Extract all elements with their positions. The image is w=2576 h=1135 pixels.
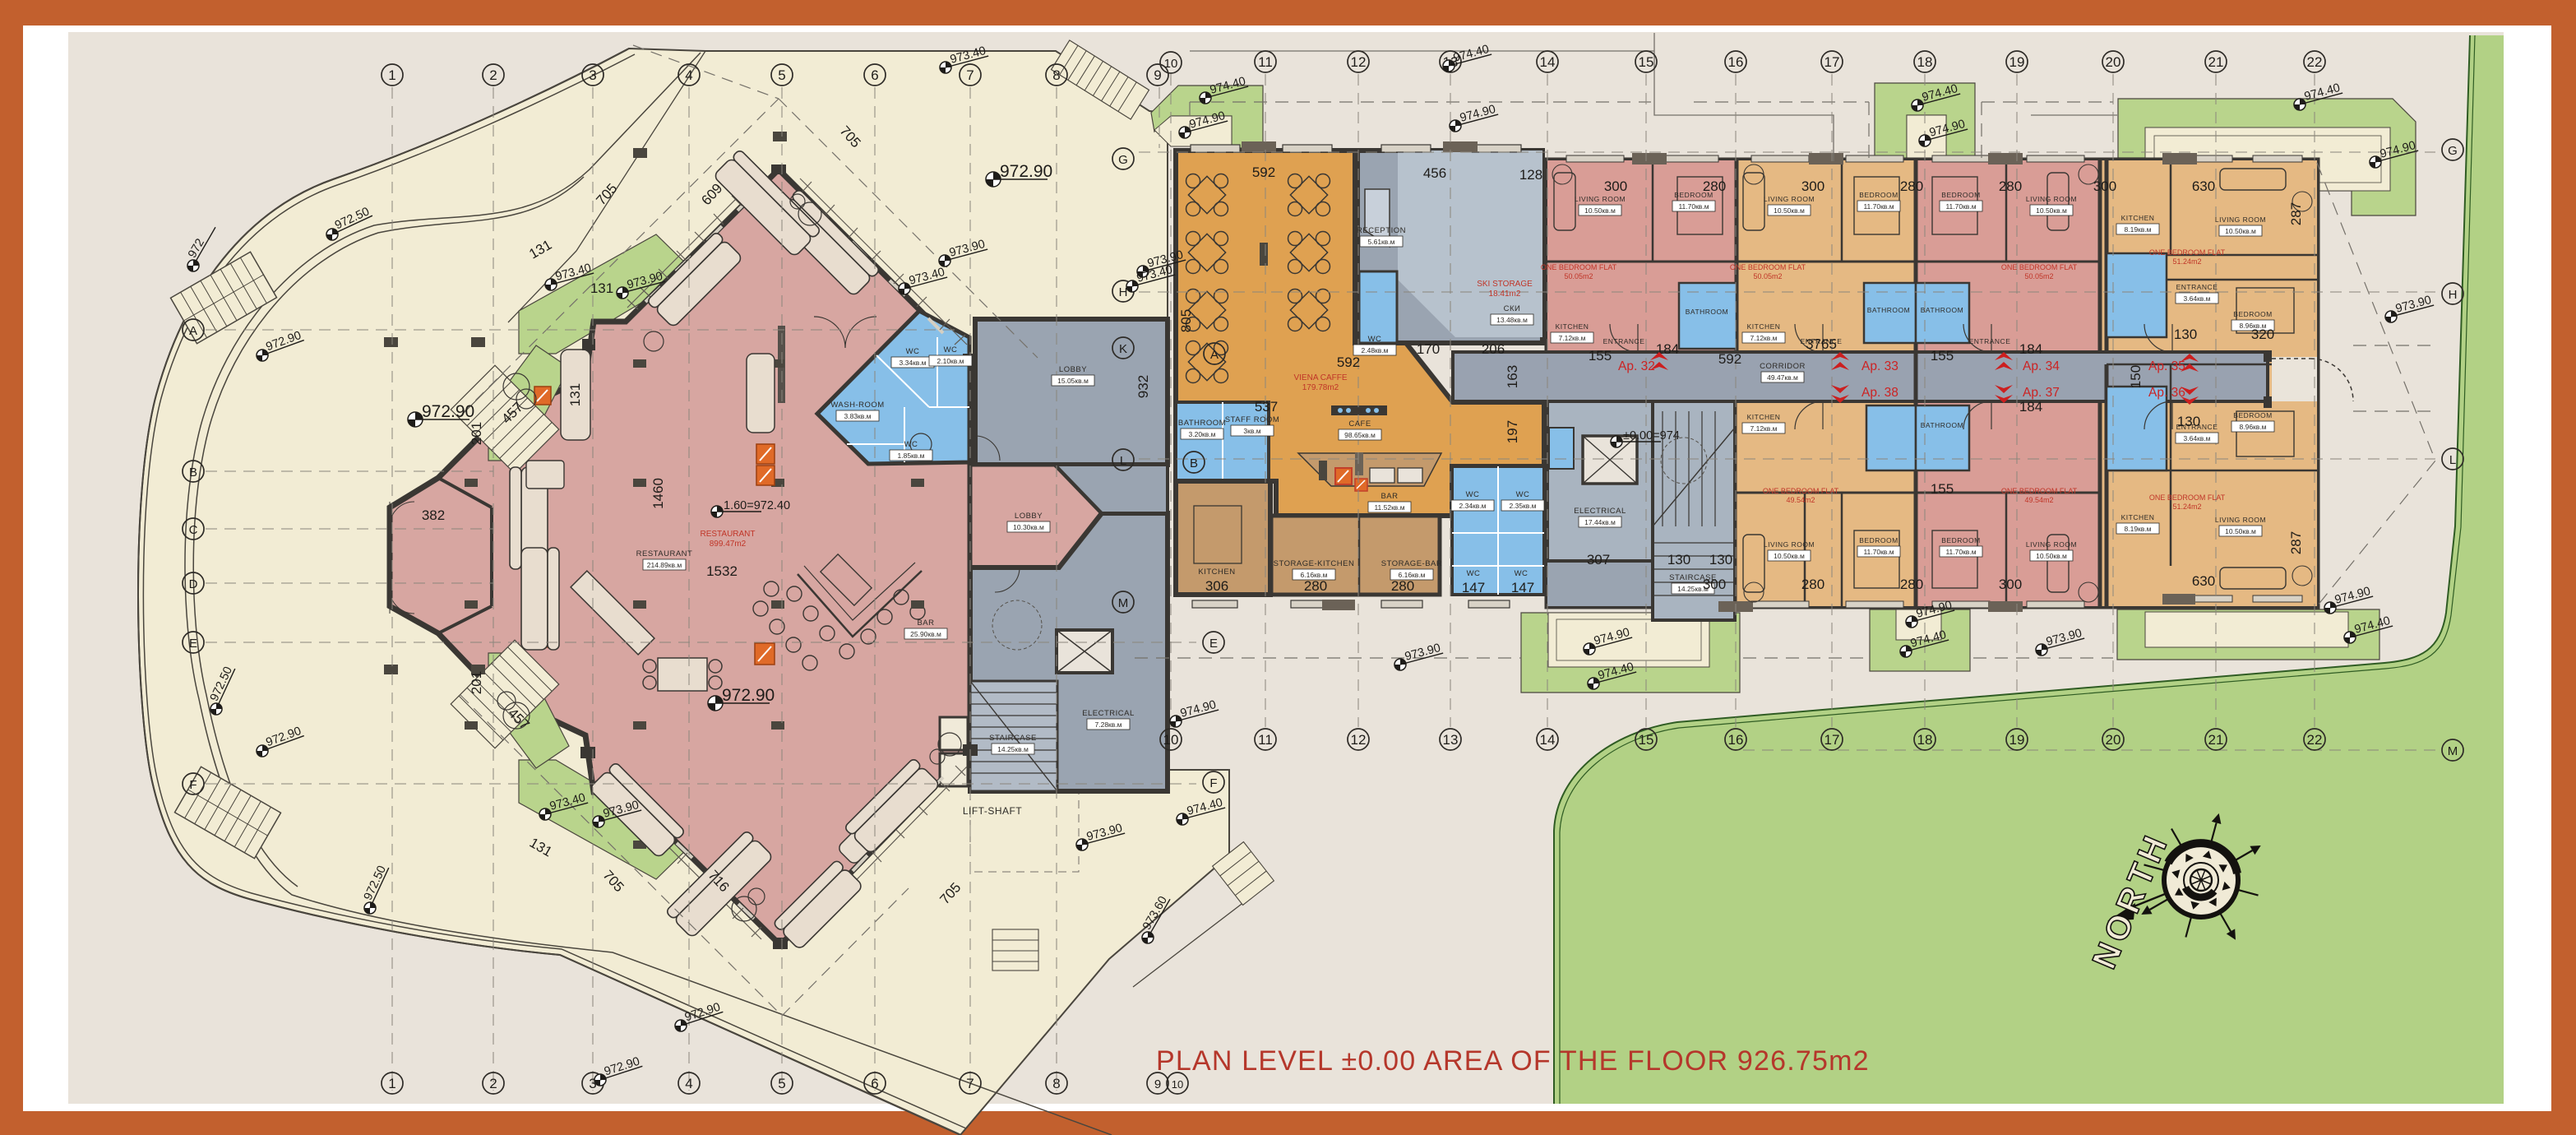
svg-text:1.60=972.40: 1.60=972.40 bbox=[724, 499, 790, 512]
svg-text:ONE BEDROOM FLAT: ONE BEDROOM FLAT bbox=[2001, 263, 2078, 271]
svg-text:7.12кв.м: 7.12кв.м bbox=[1559, 334, 1586, 342]
svg-text:LIVING ROOM: LIVING ROOM bbox=[1575, 195, 1626, 203]
svg-text:LIVING ROOM: LIVING ROOM bbox=[1764, 540, 1815, 549]
svg-text:287: 287 bbox=[2288, 202, 2304, 225]
svg-text:WC: WC bbox=[904, 440, 918, 449]
svg-text:3.20кв.м: 3.20кв.м bbox=[1189, 430, 1216, 438]
svg-text:280: 280 bbox=[1900, 178, 1923, 194]
svg-text:10: 10 bbox=[1163, 732, 1179, 748]
svg-text:280: 280 bbox=[1900, 577, 1923, 592]
svg-text:KITCHEN: KITCHEN bbox=[1747, 322, 1781, 331]
svg-text:6: 6 bbox=[871, 1076, 878, 1091]
svg-text:8.19кв.м: 8.19кв.м bbox=[2125, 525, 2152, 533]
svg-text:E: E bbox=[189, 637, 197, 651]
svg-text:B: B bbox=[1190, 456, 1198, 470]
svg-text:10.50кв.м: 10.50кв.м bbox=[1774, 206, 1805, 215]
svg-text:18.41m2: 18.41m2 bbox=[1489, 290, 1521, 299]
svg-text:RESTAURANT: RESTAURANT bbox=[636, 549, 693, 558]
svg-text:11.70кв.м: 11.70кв.м bbox=[1863, 202, 1894, 211]
svg-text:A: A bbox=[1210, 348, 1219, 362]
svg-text:ELECTRICAL: ELECTRICAL bbox=[1574, 507, 1626, 516]
svg-text:197: 197 bbox=[1505, 420, 1520, 443]
svg-text:ONE BEDROOM FLAT: ONE BEDROOM FLAT bbox=[2001, 487, 2078, 495]
svg-text:592: 592 bbox=[1252, 164, 1275, 180]
svg-text:G: G bbox=[1118, 153, 1128, 167]
svg-text:179.78m2: 179.78m2 bbox=[1302, 383, 1339, 392]
svg-text:10: 10 bbox=[1172, 1078, 1183, 1091]
svg-text:10.50кв.м: 10.50кв.м bbox=[1584, 206, 1616, 215]
svg-text:11.70кв.м: 11.70кв.м bbox=[1863, 548, 1894, 556]
svg-text:CAFE: CAFE bbox=[1348, 419, 1371, 429]
svg-text:BEDROOM: BEDROOM bbox=[1859, 191, 1898, 199]
svg-text:50.05m2: 50.05m2 bbox=[1753, 272, 1782, 280]
svg-text:184: 184 bbox=[2019, 341, 2042, 357]
svg-text:Ap. 34: Ap. 34 bbox=[2023, 359, 2060, 373]
svg-text:382: 382 bbox=[422, 507, 445, 523]
svg-text:19: 19 bbox=[2009, 732, 2025, 748]
svg-text:17.44кв.м: 17.44кв.м bbox=[1584, 518, 1616, 526]
svg-text:RECEPTION: RECEPTION bbox=[1357, 226, 1406, 235]
svg-text:131: 131 bbox=[567, 383, 583, 406]
svg-text:BEDROOM: BEDROOM bbox=[1941, 536, 1980, 544]
svg-text:155: 155 bbox=[1931, 348, 1954, 364]
svg-text:9: 9 bbox=[1154, 67, 1161, 83]
svg-text:ONE BEDROOM FLAT: ONE BEDROOM FLAT bbox=[1763, 487, 1839, 495]
svg-text:BATHROOM: BATHROOM bbox=[1178, 419, 1226, 428]
svg-text:WC: WC bbox=[1467, 569, 1481, 578]
svg-text:300: 300 bbox=[1801, 178, 1824, 194]
svg-text:972.90: 972.90 bbox=[722, 686, 775, 705]
svg-text:ONE BEDROOM FLAT: ONE BEDROOM FLAT bbox=[2149, 248, 2226, 257]
svg-text:СКИ: СКИ bbox=[1504, 304, 1521, 313]
svg-text:21: 21 bbox=[2208, 54, 2224, 70]
svg-text:14: 14 bbox=[1540, 732, 1556, 748]
svg-text:11: 11 bbox=[1258, 732, 1273, 748]
svg-text:8.96кв.м: 8.96кв.м bbox=[2240, 423, 2267, 431]
svg-text:8: 8 bbox=[1052, 1076, 1060, 1091]
svg-text:2.48кв.м: 2.48кв.м bbox=[1362, 346, 1389, 354]
svg-text:280: 280 bbox=[1999, 178, 2022, 194]
svg-text:147: 147 bbox=[1511, 580, 1534, 595]
svg-text:300: 300 bbox=[1604, 178, 1627, 194]
svg-text:KITCHEN: KITCHEN bbox=[2121, 214, 2155, 222]
svg-text:5: 5 bbox=[778, 1076, 785, 1091]
svg-text:1.85кв.м: 1.85кв.м bbox=[898, 452, 925, 460]
svg-text:ENTRANCE: ENTRANCE bbox=[1969, 337, 2011, 345]
svg-text:201: 201 bbox=[469, 671, 484, 694]
svg-text:11.70кв.м: 11.70кв.м bbox=[1945, 548, 1976, 556]
svg-text:630: 630 bbox=[2192, 573, 2215, 589]
svg-text:7: 7 bbox=[966, 67, 974, 83]
svg-text:CORRIDOR: CORRIDOR bbox=[1760, 362, 1806, 371]
svg-text:1: 1 bbox=[388, 1076, 395, 1091]
svg-text:4: 4 bbox=[685, 1076, 692, 1091]
svg-text:22: 22 bbox=[2307, 54, 2323, 70]
svg-text:3.64кв.м: 3.64кв.м bbox=[2184, 434, 2211, 442]
svg-text:130: 130 bbox=[2174, 327, 2197, 342]
svg-text:4: 4 bbox=[685, 67, 692, 83]
svg-text:BEDROOM: BEDROOM bbox=[2233, 310, 2272, 318]
svg-text:287: 287 bbox=[2288, 531, 2304, 554]
svg-text:LOBBY: LOBBY bbox=[1059, 365, 1087, 374]
svg-text:WC: WC bbox=[1466, 490, 1480, 499]
svg-text:49.54m2: 49.54m2 bbox=[2024, 496, 2053, 504]
svg-text:Ap. 37: Ap. 37 bbox=[2023, 386, 2060, 400]
svg-text:49.47кв.м: 49.47кв.м bbox=[1767, 373, 1798, 382]
svg-text:VIENA CAFFE: VIENA CAFFE bbox=[1293, 373, 1347, 382]
svg-text:19: 19 bbox=[2009, 54, 2025, 70]
svg-text:WC: WC bbox=[1516, 490, 1530, 499]
svg-text:300: 300 bbox=[1703, 577, 1726, 592]
svg-text:C: C bbox=[189, 523, 198, 537]
svg-text:K: K bbox=[1119, 342, 1127, 356]
svg-text:456: 456 bbox=[1423, 165, 1446, 181]
svg-text:11.70кв.м: 11.70кв.м bbox=[1945, 202, 1976, 211]
svg-text:592: 592 bbox=[1337, 354, 1360, 370]
svg-text:51.24m2: 51.24m2 bbox=[2172, 503, 2201, 511]
svg-text:KITCHEN: KITCHEN bbox=[1556, 322, 1589, 331]
svg-text:8: 8 bbox=[1052, 67, 1060, 83]
svg-text:2.35кв.м: 2.35кв.м bbox=[1510, 502, 1537, 510]
svg-text:LIVING ROOM: LIVING ROOM bbox=[2215, 516, 2266, 524]
svg-text:16: 16 bbox=[1728, 732, 1744, 748]
svg-text:10.30кв.м: 10.30кв.м bbox=[1013, 523, 1044, 531]
svg-text:11.70кв.м: 11.70кв.м bbox=[1678, 202, 1709, 211]
svg-text:BEDROOM: BEDROOM bbox=[1941, 191, 1980, 199]
svg-text:LIVING ROOM: LIVING ROOM bbox=[2215, 215, 2266, 224]
svg-text:14: 14 bbox=[1540, 54, 1556, 70]
svg-text:ONE BEDROOM FLAT: ONE BEDROOM FLAT bbox=[1730, 263, 1806, 271]
svg-text:12: 12 bbox=[1351, 54, 1367, 70]
svg-text:3.34кв.м: 3.34кв.м bbox=[900, 359, 927, 367]
svg-text:ELECTRICAL: ELECTRICAL bbox=[1082, 709, 1135, 718]
svg-text:130: 130 bbox=[1709, 552, 1732, 567]
svg-text:10: 10 bbox=[1164, 57, 1178, 71]
svg-text:972.90: 972.90 bbox=[422, 402, 474, 421]
svg-text:LIVING ROOM: LIVING ROOM bbox=[2026, 540, 2077, 549]
svg-text:592: 592 bbox=[1718, 351, 1741, 367]
svg-text:LIVING ROOM: LIVING ROOM bbox=[1764, 195, 1815, 203]
svg-text:6: 6 bbox=[871, 67, 878, 83]
svg-text:131: 131 bbox=[590, 280, 613, 296]
svg-text:ONE BEDROOM FLAT: ONE BEDROOM FLAT bbox=[1541, 263, 1617, 271]
svg-text:300: 300 bbox=[2093, 178, 2116, 194]
svg-text:15: 15 bbox=[1639, 54, 1654, 70]
svg-text:13: 13 bbox=[1443, 732, 1459, 748]
svg-text:BAR: BAR bbox=[1380, 492, 1398, 501]
svg-text:15.05кв.м: 15.05кв.м bbox=[1057, 377, 1089, 385]
svg-text:130: 130 bbox=[1667, 552, 1690, 567]
svg-text:21: 21 bbox=[2208, 732, 2224, 748]
svg-text:3кв.м: 3кв.м bbox=[1243, 427, 1260, 435]
svg-text:WC: WC bbox=[1515, 569, 1528, 578]
svg-text:STAIRCASE: STAIRCASE bbox=[989, 734, 1037, 743]
svg-text:155: 155 bbox=[1931, 481, 1954, 497]
svg-text:49.54m2: 49.54m2 bbox=[1786, 496, 1815, 504]
svg-text:KITCHEN: KITCHEN bbox=[2121, 513, 2155, 521]
svg-text:307: 307 bbox=[1587, 552, 1610, 567]
svg-text:130: 130 bbox=[2177, 414, 2200, 429]
svg-text:Ap. 33: Ap. 33 bbox=[1861, 359, 1898, 373]
svg-text:BEDROOM: BEDROOM bbox=[2233, 411, 2272, 419]
svg-text:25.90кв.м: 25.90кв.м bbox=[910, 630, 941, 638]
svg-text:3765: 3765 bbox=[1806, 336, 1837, 352]
svg-text:320: 320 bbox=[2251, 327, 2274, 342]
svg-text:280: 280 bbox=[1801, 577, 1824, 592]
svg-text:ONE BEDROOM FLAT: ONE BEDROOM FLAT bbox=[2149, 493, 2226, 502]
svg-text:214.89кв.м: 214.89кв.м bbox=[647, 561, 682, 569]
svg-text:3.64кв.м: 3.64кв.м bbox=[2184, 294, 2211, 303]
svg-text:STAFF ROOM: STAFF ROOM bbox=[1225, 415, 1280, 424]
svg-text:150: 150 bbox=[2128, 365, 2144, 388]
svg-text:147: 147 bbox=[1462, 580, 1485, 595]
svg-text:LIVING ROOM: LIVING ROOM bbox=[2026, 195, 2077, 203]
svg-text:7.12кв.м: 7.12кв.м bbox=[1750, 424, 1778, 433]
svg-text:2.34кв.м: 2.34кв.м bbox=[1459, 502, 1487, 510]
svg-text:Ap. 35: Ap. 35 bbox=[2148, 359, 2185, 373]
svg-text:14.25кв.м: 14.25кв.м bbox=[997, 745, 1029, 753]
svg-text:BATHROOM: BATHROOM bbox=[1921, 421, 1963, 429]
svg-text:10.50кв.м: 10.50кв.м bbox=[2225, 527, 2256, 535]
svg-text:BATHROOM: BATHROOM bbox=[1867, 306, 1910, 314]
svg-text:±0.00=974: ±0.00=974 bbox=[1623, 429, 1680, 442]
svg-text:50.05m2: 50.05m2 bbox=[1564, 272, 1593, 280]
svg-text:STORAGE-KITCHEN: STORAGE-KITCHEN bbox=[1274, 559, 1355, 568]
svg-text:E: E bbox=[1209, 637, 1218, 651]
svg-text:KITCHEN: KITCHEN bbox=[1198, 567, 1235, 577]
svg-text:H: H bbox=[2449, 288, 2458, 302]
svg-text:12: 12 bbox=[1351, 732, 1367, 748]
svg-text:10.50кв.м: 10.50кв.м bbox=[2036, 206, 2067, 215]
svg-text:5.61кв.м: 5.61кв.м bbox=[1368, 238, 1395, 246]
svg-text:280: 280 bbox=[1391, 578, 1414, 594]
svg-text:10.50кв.м: 10.50кв.м bbox=[2225, 227, 2256, 235]
svg-text:18: 18 bbox=[1917, 54, 1933, 70]
svg-text:A: A bbox=[189, 324, 197, 338]
svg-text:2: 2 bbox=[489, 67, 497, 83]
svg-text:3: 3 bbox=[589, 67, 596, 83]
svg-text:BEDROOM: BEDROOM bbox=[1859, 536, 1898, 544]
svg-text:M: M bbox=[1118, 596, 1129, 610]
svg-text:PLAN LEVEL ±0.00 AREA OF THE: PLAN LEVEL ±0.00 AREA OF THE FLOOR 926.7… bbox=[1156, 1045, 1870, 1077]
svg-text:20: 20 bbox=[2106, 732, 2121, 748]
svg-text:D: D bbox=[189, 577, 198, 591]
svg-text:280: 280 bbox=[1304, 578, 1327, 594]
svg-text:98.65кв.м: 98.65кв.м bbox=[1344, 431, 1376, 439]
svg-text:Ap. 38: Ap. 38 bbox=[1861, 386, 1898, 400]
svg-text:BATHROOM: BATHROOM bbox=[1921, 306, 1963, 314]
svg-text:F: F bbox=[1209, 776, 1217, 790]
svg-text:ENTRANCE: ENTRANCE bbox=[2176, 283, 2218, 291]
svg-text:201: 201 bbox=[469, 422, 484, 445]
svg-text:17: 17 bbox=[1824, 732, 1840, 748]
svg-text:184: 184 bbox=[2019, 399, 2042, 415]
svg-text:10.50кв.м: 10.50кв.м bbox=[1774, 552, 1805, 560]
svg-text:2: 2 bbox=[489, 1076, 497, 1091]
svg-text:7.12кв.м: 7.12кв.м bbox=[1750, 334, 1778, 342]
svg-text:15: 15 bbox=[1639, 732, 1654, 748]
svg-text:22: 22 bbox=[2307, 732, 2323, 748]
svg-text:1532: 1532 bbox=[706, 563, 738, 579]
svg-text:G: G bbox=[2448, 144, 2458, 158]
svg-text:2.10кв.м: 2.10кв.м bbox=[937, 357, 964, 365]
svg-text:L: L bbox=[2449, 453, 2456, 467]
svg-text:WASH-ROOM: WASH-ROOM bbox=[830, 401, 884, 410]
svg-text:LIFT-SHAFT: LIFT-SHAFT bbox=[963, 805, 1023, 817]
svg-text:3.83кв.м: 3.83кв.м bbox=[844, 412, 872, 420]
svg-text:17: 17 bbox=[1824, 54, 1840, 70]
svg-text:9: 9 bbox=[1154, 1077, 1161, 1091]
svg-text:630: 630 bbox=[2192, 178, 2215, 194]
svg-text:1: 1 bbox=[388, 67, 395, 83]
svg-text:BATHROOM: BATHROOM bbox=[1686, 308, 1728, 316]
svg-text:300: 300 bbox=[1999, 577, 2022, 592]
svg-text:155: 155 bbox=[1589, 348, 1612, 364]
svg-text:Ap. 36: Ap. 36 bbox=[2148, 386, 2185, 400]
svg-text:170: 170 bbox=[1417, 341, 1440, 357]
svg-text:RESTAURANT: RESTAURANT bbox=[700, 530, 755, 539]
svg-text:STORAGE-BAR: STORAGE-BAR bbox=[1381, 559, 1442, 568]
svg-text:972.90: 972.90 bbox=[1000, 162, 1052, 181]
svg-text:50.05m2: 50.05m2 bbox=[2024, 272, 2053, 280]
svg-text:WC: WC bbox=[1368, 335, 1382, 344]
svg-text:11.52кв.м: 11.52кв.м bbox=[1374, 503, 1404, 512]
svg-text:F: F bbox=[189, 778, 197, 792]
svg-text:11: 11 bbox=[1258, 54, 1273, 70]
svg-text:B: B bbox=[189, 466, 197, 479]
svg-text:SKI STORAGE: SKI STORAGE bbox=[1477, 280, 1533, 289]
svg-text:537: 537 bbox=[1255, 399, 1278, 415]
svg-text:5: 5 bbox=[778, 67, 785, 83]
svg-text:128: 128 bbox=[1519, 167, 1542, 183]
svg-text:KITCHEN: KITCHEN bbox=[1747, 413, 1781, 421]
svg-text:ENTRANCE: ENTRANCE bbox=[1603, 337, 1645, 345]
svg-text:8.19кв.м: 8.19кв.м bbox=[2125, 225, 2152, 234]
svg-text:13.48кв.м: 13.48кв.м bbox=[1496, 316, 1528, 324]
svg-text:1460: 1460 bbox=[650, 478, 666, 509]
svg-text:L: L bbox=[1120, 454, 1126, 468]
svg-text:WC: WC bbox=[906, 347, 920, 356]
svg-text:M: M bbox=[2448, 744, 2458, 758]
svg-text:10.50кв.м: 10.50кв.м bbox=[2036, 552, 2067, 560]
svg-text:163: 163 bbox=[1505, 365, 1520, 388]
svg-text:BAR: BAR bbox=[917, 618, 934, 628]
svg-text:16: 16 bbox=[1728, 54, 1744, 70]
svg-text:WC: WC bbox=[944, 345, 958, 354]
svg-text:932: 932 bbox=[1135, 375, 1151, 398]
svg-text:18: 18 bbox=[1917, 732, 1933, 748]
svg-text:899.47m2: 899.47m2 bbox=[710, 540, 747, 549]
svg-text:LOBBY: LOBBY bbox=[1015, 512, 1043, 521]
svg-text:7.28кв.м: 7.28кв.м bbox=[1095, 720, 1122, 729]
svg-text:51.24m2: 51.24m2 bbox=[2172, 257, 2201, 266]
svg-text:7: 7 bbox=[966, 1076, 974, 1091]
svg-text:Ap. 32: Ap. 32 bbox=[1618, 359, 1655, 373]
svg-text:280: 280 bbox=[1703, 178, 1726, 194]
svg-text:306: 306 bbox=[1205, 578, 1228, 594]
svg-text:805: 805 bbox=[1178, 309, 1194, 332]
svg-text:206: 206 bbox=[1482, 341, 1505, 357]
svg-text:20: 20 bbox=[2106, 54, 2121, 70]
